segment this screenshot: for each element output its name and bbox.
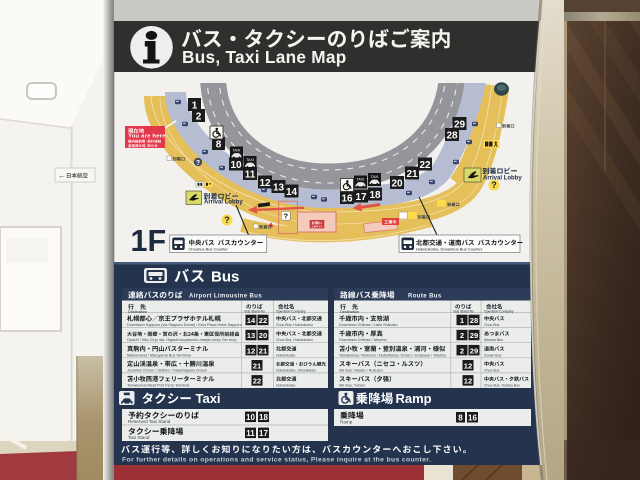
svg-text:Arrival Lobby: Arrival Lobby: [483, 175, 522, 181]
svg-text:TAXI: TAXI: [233, 149, 241, 153]
svg-text:Donan Bus: Donan Bus: [484, 353, 502, 357]
svg-text:22: 22: [253, 377, 261, 386]
svg-text:18: 18: [259, 413, 268, 422]
svg-text:?: ?: [491, 180, 497, 190]
svg-text:For further details on operati: For further details on operations and se…: [122, 457, 431, 464]
svg-text:12: 12: [464, 377, 472, 386]
svg-text:Atsuma Bus: Atsuma Bus: [484, 338, 503, 342]
svg-text:Downtown Sapporo (via Sapporo: Downtown Sapporo (via Sapporo Dome) / Ke…: [127, 323, 242, 327]
svg-text:Ramp: Ramp: [396, 391, 432, 406]
svg-text:11: 11: [245, 170, 256, 181]
svg-text:10: 10: [230, 160, 242, 171]
svg-text:Chuo Bus: Chuo Bus: [484, 368, 500, 372]
svg-text:Operation Company: Operation Company: [484, 310, 514, 314]
svg-text:Taxi Stand: Taxi Stand: [128, 435, 150, 440]
svg-text:28: 28: [470, 316, 478, 325]
svg-text:18: 18: [369, 190, 381, 201]
svg-text:22: 22: [259, 316, 267, 325]
svg-text:Bus: Bus: [211, 269, 239, 286]
svg-text:TAXI: TAXI: [246, 158, 254, 162]
svg-text:Downtown Chitose / Lake Shikot: Downtown Chitose / Lake Shikotsu: [339, 323, 398, 327]
svg-text:13: 13: [273, 183, 285, 194]
svg-text:14: 14: [247, 316, 256, 325]
svg-text:Bus Stand No: Bus Stand No: [454, 310, 475, 314]
svg-text:12: 12: [259, 178, 271, 189]
svg-text:2: 2: [196, 112, 202, 123]
svg-text:12: 12: [464, 361, 472, 370]
svg-text:Downtown Chitose / Atsuma: Downtown Chitose / Atsuma: [339, 338, 387, 342]
svg-text:Hokutokotsu, Obiunkanko: Hokutokotsu, Obiunkanko: [276, 368, 316, 372]
svg-text:8: 8: [216, 140, 222, 151]
svg-text:Tomakomai West Port Ferry Term: Tomakomai West Port Ferry Terminal: [127, 384, 189, 388]
svg-text:10: 10: [246, 413, 255, 422]
svg-text:1F: 1F: [131, 224, 167, 258]
svg-text:12: 12: [247, 346, 255, 355]
svg-text:Operation Company: Operation Company: [276, 310, 306, 314]
svg-text:Ski Bus: Niseko / Rusutsu: Ski Bus: Niseko / Rusutsu: [339, 368, 383, 372]
svg-text:Destination: Destination: [340, 310, 359, 314]
svg-text:You are here: You are here: [128, 134, 166, 140]
svg-text:TAXI: TAXI: [357, 178, 365, 182]
svg-text:Taxi: Taxi: [196, 391, 221, 406]
svg-text:Makomanai / Maruyama Bus Termi: Makomanai / Maruyama Bus Terminal: [127, 353, 191, 357]
svg-text:20: 20: [259, 331, 267, 340]
svg-text:Reserved Taxi Stand: Reserved Taxi Stand: [128, 419, 171, 424]
svg-text:29: 29: [470, 346, 478, 355]
svg-text:Hokutokotsu: Hokutokotsu: [276, 353, 296, 357]
svg-text:Hokutokotsu, Donanbus Bus Coun: Hokutokotsu, Donanbus Bus Counter: [416, 246, 483, 251]
svg-text:17: 17: [355, 192, 367, 203]
svg-text:?: ?: [196, 160, 200, 167]
svg-text:14: 14: [286, 187, 298, 198]
svg-text:28: 28: [446, 131, 458, 142]
svg-text:Chuo Bus, Hokutokotsu: Chuo Bus, Hokutokotsu: [276, 323, 313, 327]
svg-text:29: 29: [470, 331, 478, 340]
svg-text:Chuo Bus: Chuo Bus: [484, 323, 500, 327]
svg-text:Bus Stand No: Bus Stand No: [245, 310, 266, 314]
svg-text:13: 13: [247, 331, 255, 340]
svg-text:21: 21: [406, 169, 418, 180]
svg-text:Ramp: Ramp: [340, 420, 353, 425]
svg-text:20: 20: [391, 179, 403, 190]
svg-text:21: 21: [259, 346, 268, 355]
svg-text:2: 2: [460, 346, 464, 355]
svg-text:11: 11: [246, 429, 255, 438]
svg-text:16: 16: [341, 194, 353, 205]
svg-text:29: 29: [454, 120, 466, 131]
svg-text:Destination: Destination: [128, 310, 147, 314]
svg-text:Airport Limousine Bus: Airport Limousine Bus: [189, 294, 262, 300]
svg-text:?: ?: [284, 211, 289, 220]
svg-text:Arrival Lobby: Arrival Lobby: [204, 199, 243, 205]
svg-text:Hokutokotsu: Hokutokotsu: [276, 384, 296, 388]
svg-text:Route Bus: Route Bus: [408, 294, 442, 300]
svg-text:TAXI: TAXI: [371, 175, 379, 179]
svg-text:16: 16: [468, 413, 477, 422]
svg-text:22: 22: [419, 160, 431, 171]
svg-text:Ski Bus: Yubari: Ski Bus: Yubari: [339, 384, 365, 388]
svg-text:17: 17: [259, 429, 268, 438]
svg-text:←: ←: [58, 171, 66, 180]
svg-text:Bus, Taxi Lane Map: Bus, Taxi Lane Map: [182, 47, 347, 67]
svg-text:21: 21: [253, 361, 262, 370]
svg-text:Jozankei Onsen / Obihiro / Tok: Jozankei Onsen / Obihiro / Tokachigawa O…: [127, 368, 207, 372]
svg-text:8: 8: [458, 413, 463, 422]
svg-text:2: 2: [460, 331, 464, 340]
svg-text:?: ?: [224, 215, 230, 225]
svg-text:Oyachi / Kita 24-jo sta. Higas: Oyachi / Kita 24-jo sta. Higashi-kuyakus…: [127, 338, 237, 342]
svg-text:Chuo Bus, Hokutokotsu: Chuo Bus, Hokutokotsu: [276, 338, 313, 342]
svg-text:Chuo Bus, Yutetsu Bus: Chuo Bus, Yutetsu Bus: [484, 384, 520, 388]
svg-text:Tomakomai / Muroran / Noboribe: Tomakomai / Muroran / Noboribetsu Onsen …: [339, 353, 446, 357]
svg-text:Choubus Bus Counter: Choubus Bus Counter: [189, 246, 229, 251]
